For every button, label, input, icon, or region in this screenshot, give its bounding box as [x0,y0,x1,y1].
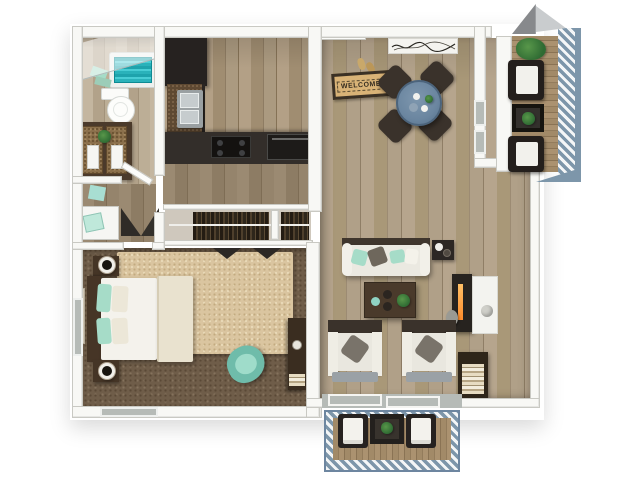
bedroom-window [73,298,83,356]
stacked-books [462,364,484,394]
sofa-arm [420,243,430,276]
bedroom-window [100,407,158,417]
table-lamp [99,363,115,379]
toilet [99,86,139,126]
patio-table-plant [381,422,393,434]
hallway-floor [163,164,322,208]
burner [217,140,223,146]
balcony-lower [324,410,460,472]
fold-dark-triangle [512,4,540,34]
decor-bowl [383,302,392,311]
refrigerator [163,36,207,86]
sink-basin [180,93,199,108]
patio-chair [338,414,368,448]
wall-segment [72,242,124,250]
patio-table [370,414,404,444]
bath-mat [88,185,106,202]
wall-segment [72,26,83,418]
dresser-clock [292,340,302,350]
sink-basin [180,110,199,124]
bed-duvet [157,276,193,362]
patio-chair [508,136,544,172]
abstract-wall-art [388,38,458,54]
wall-segment [163,240,313,246]
armchair-arm [402,332,412,376]
throw-pillow [404,248,419,265]
pillow [96,318,112,345]
corner-fold-icon [506,4,570,38]
table-plant [397,294,410,307]
storage-box [82,212,104,233]
pillow [111,318,128,345]
window [474,100,486,126]
table-plant [425,95,433,103]
appliance-handle [272,138,308,140]
patio-chair-cushion [411,418,431,444]
armchair-arm [446,332,456,376]
hanging-clothes [193,212,269,240]
patio-table [512,104,544,132]
patio-chair-cushion [343,418,363,444]
armchair-blanket [406,372,452,382]
vanity-plant [98,130,111,143]
sliding-door-frame [328,394,382,406]
armchair-arm [328,332,338,376]
sliding-glass-door [322,394,462,408]
stacked-books [289,374,305,386]
cup [413,93,420,100]
window [474,130,486,154]
bathroom [75,28,163,184]
coffee-table [364,282,416,318]
armchair [402,320,456,382]
toilet-lid-ring [113,102,128,117]
balcony-plant [516,38,546,60]
vanity-sink [87,145,99,169]
patio-table-plant [522,112,535,125]
burner [239,140,245,146]
hallway [75,184,163,248]
wall-segment [306,242,320,418]
mug [443,249,451,257]
floorplan-canvas: WELCOME [0,0,640,480]
chimney-block [472,276,498,334]
sliding-door-frame [386,396,440,408]
throw-pillow [389,249,406,264]
cup [421,105,428,112]
fireplace-flame [458,284,463,320]
vanity-counter [80,122,132,180]
armchair [328,320,382,382]
balcony-railing-edge [575,28,581,180]
pillow [111,286,128,313]
wall-segment [154,26,165,176]
stove-cooktop [211,136,251,158]
egg-chair-cushion [232,350,260,377]
hanging-clothes [281,212,309,240]
wall-segment [456,398,540,408]
plate [409,103,418,112]
dishwasher [267,134,311,160]
patio-chair [406,414,436,448]
table-lamp [99,257,115,273]
closet-rod [169,224,309,226]
closet-hallway [163,164,322,248]
balcony-railing [558,28,575,176]
wall-segment [152,242,165,250]
armchair-arm [372,332,382,376]
dining-table [396,80,442,126]
coffee-pot [435,243,443,251]
wall-segment [530,158,540,408]
burner [239,150,245,156]
teal-bowl [371,297,380,306]
pillow [96,284,112,313]
fold-light-triangle [536,6,566,32]
burner [217,150,223,156]
patio-chair [508,60,544,100]
armchair-blanket [332,372,378,382]
wall-segment [72,176,122,184]
wall-segment [72,26,492,38]
wall-segment [308,26,322,212]
side-table [432,240,454,260]
patio-chair-cushion [516,66,538,94]
wall-sconce [481,305,493,317]
closet-divider [271,210,279,240]
decor-bowl [383,290,392,299]
patio-chair-cushion [516,142,538,166]
sofa [342,238,430,276]
bedroom [75,248,320,418]
kitchen-sink [177,90,203,128]
wall-art-squiggle [389,39,459,55]
kitchen [163,28,313,164]
bookshelf [458,352,488,398]
